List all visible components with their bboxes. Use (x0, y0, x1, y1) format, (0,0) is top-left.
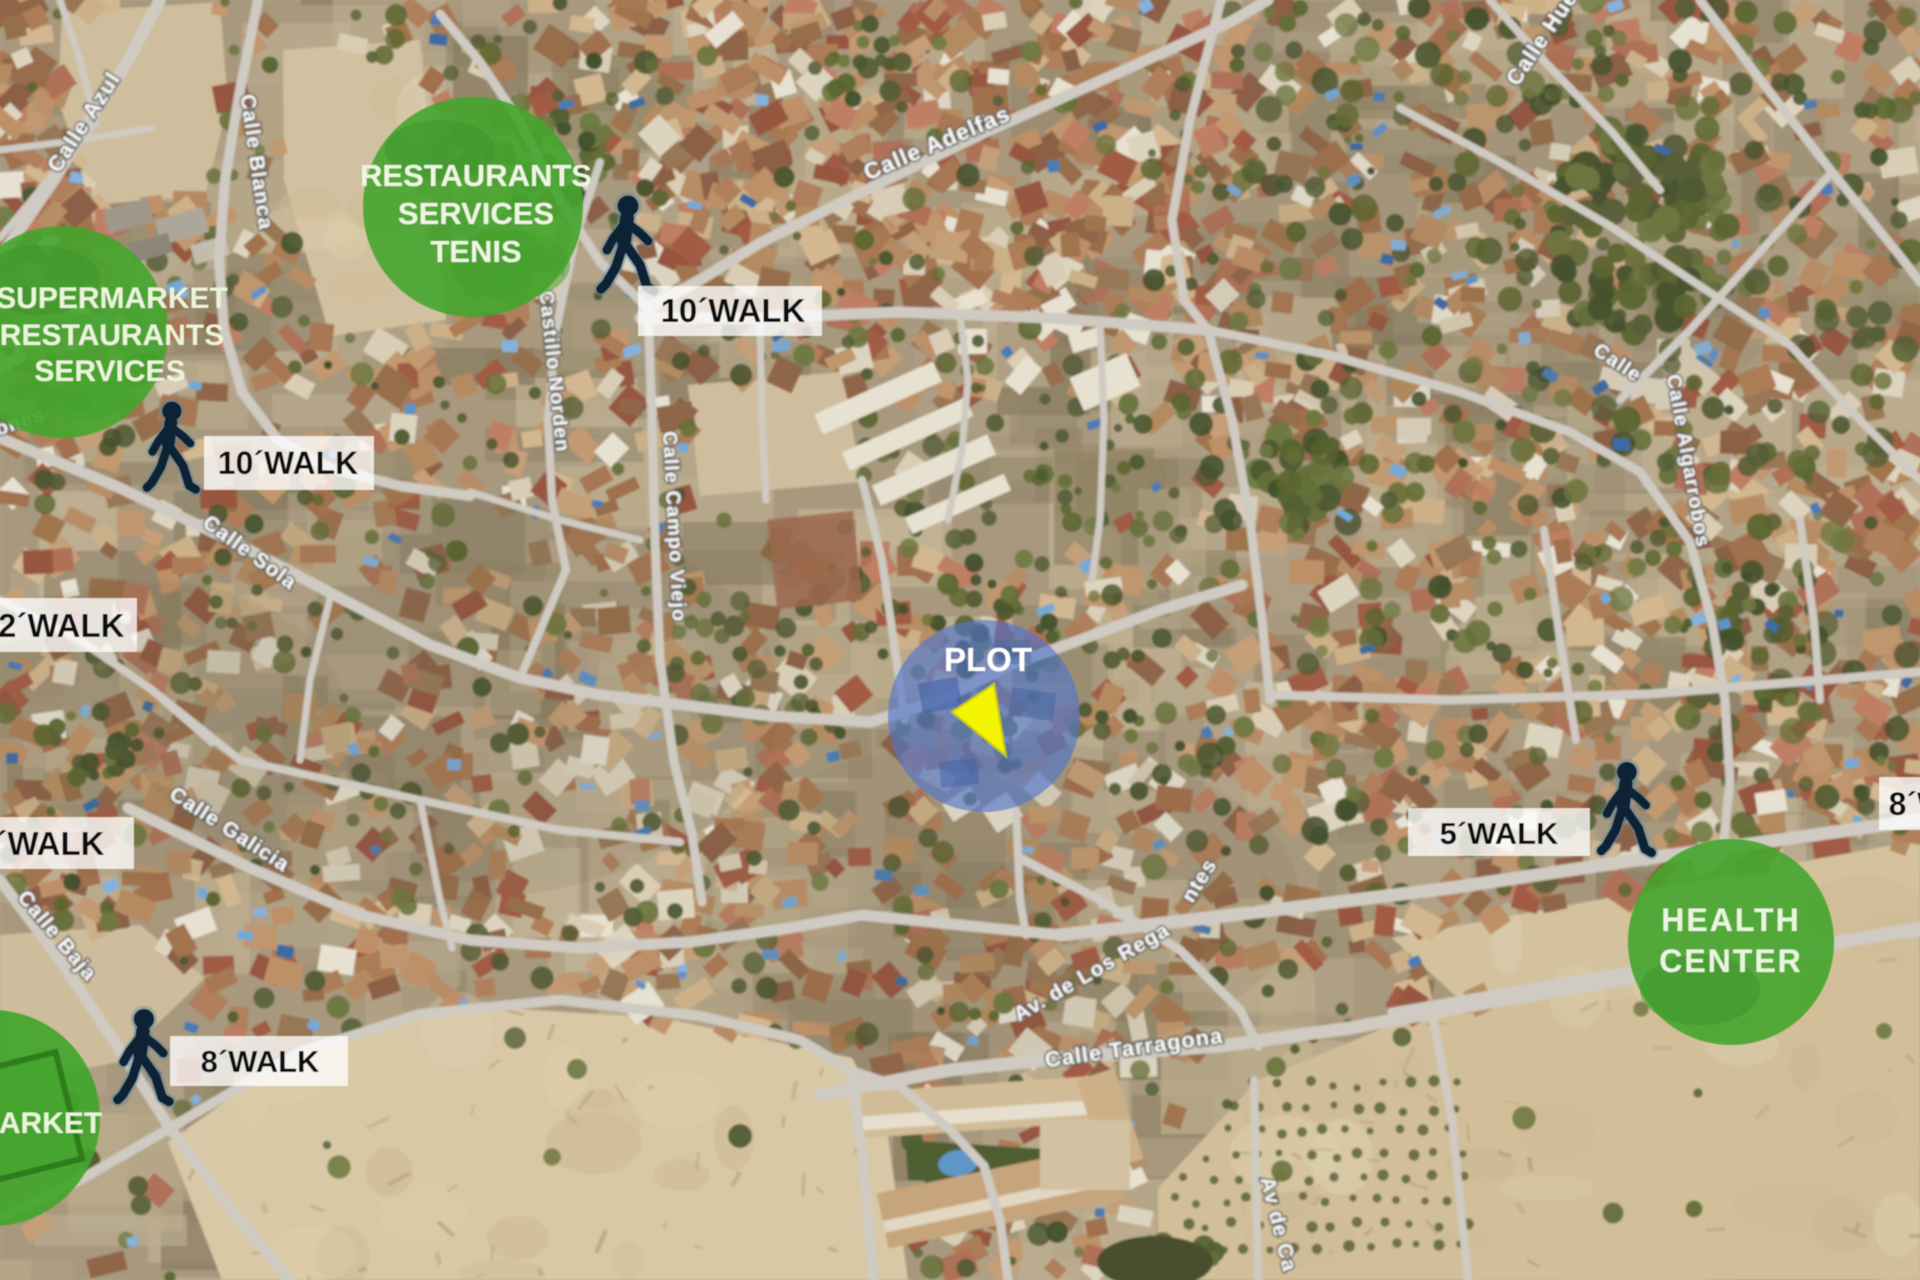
svg-text:8´W: 8´W (1889, 786, 1920, 822)
svg-text:RESTAURANTS: RESTAURANTS (360, 158, 592, 193)
svg-text:RESTAURANTS: RESTAURANTS (0, 319, 224, 352)
svg-text:10´WALK: 10´WALK (661, 292, 806, 329)
svg-text:8´WALK: 8´WALK (201, 1044, 320, 1079)
svg-text:5´WALK: 5´WALK (0, 825, 105, 862)
svg-text:10´WALK: 10´WALK (218, 445, 358, 481)
svg-text:SUPERMARKET: SUPERMARKET (0, 282, 228, 315)
svg-text:SERVICES: SERVICES (34, 355, 185, 388)
svg-text:5´WALK: 5´WALK (1440, 816, 1559, 851)
svg-text:SERVICES: SERVICES (398, 196, 554, 231)
svg-text:PLOT: PLOT (944, 641, 1032, 678)
svg-text:CENTER: CENTER (1659, 943, 1803, 979)
svg-text:TENIS: TENIS (430, 234, 521, 269)
svg-text:HEALTH: HEALTH (1661, 902, 1800, 938)
svg-text:MARKET: MARKET (0, 1107, 102, 1140)
svg-text:2´WALK: 2´WALK (0, 607, 125, 644)
